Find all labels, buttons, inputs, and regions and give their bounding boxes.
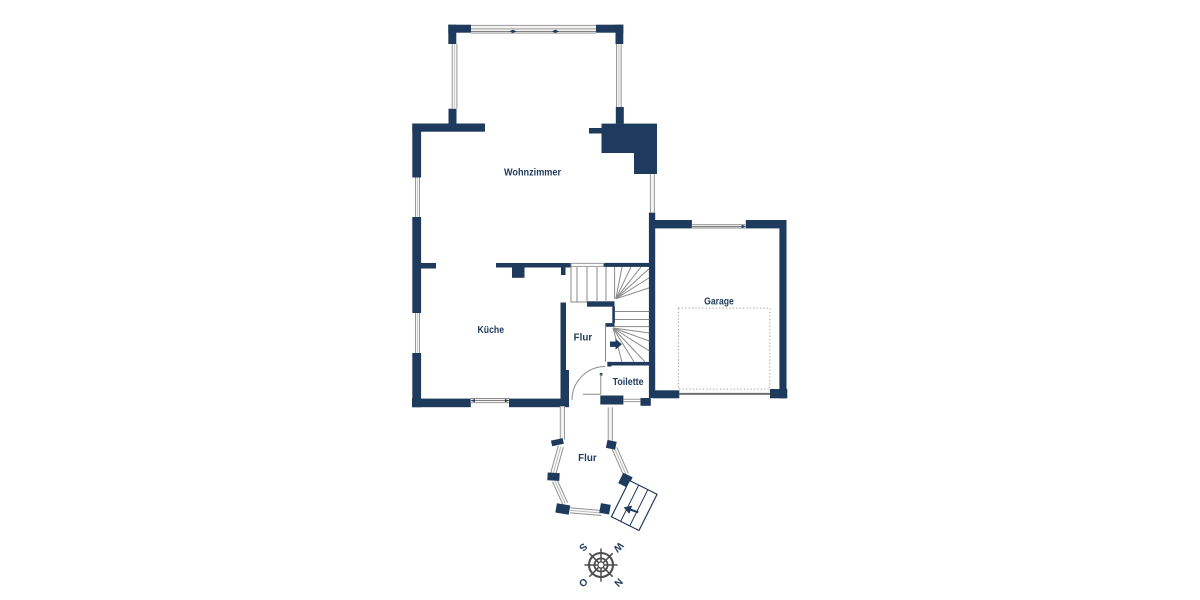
- svg-text:MIVA: MIVA: [593, 303, 609, 309]
- svg-text:Flur: Flur: [574, 332, 593, 343]
- svg-text:Garage: Garage: [704, 296, 734, 307]
- svg-text:Flur: Flur: [578, 453, 597, 464]
- svg-text:Wohnzimmer: Wohnzimmer: [504, 168, 561, 179]
- svg-text:Toilette: Toilette: [613, 377, 644, 388]
- svg-text:Küche: Küche: [478, 325, 505, 336]
